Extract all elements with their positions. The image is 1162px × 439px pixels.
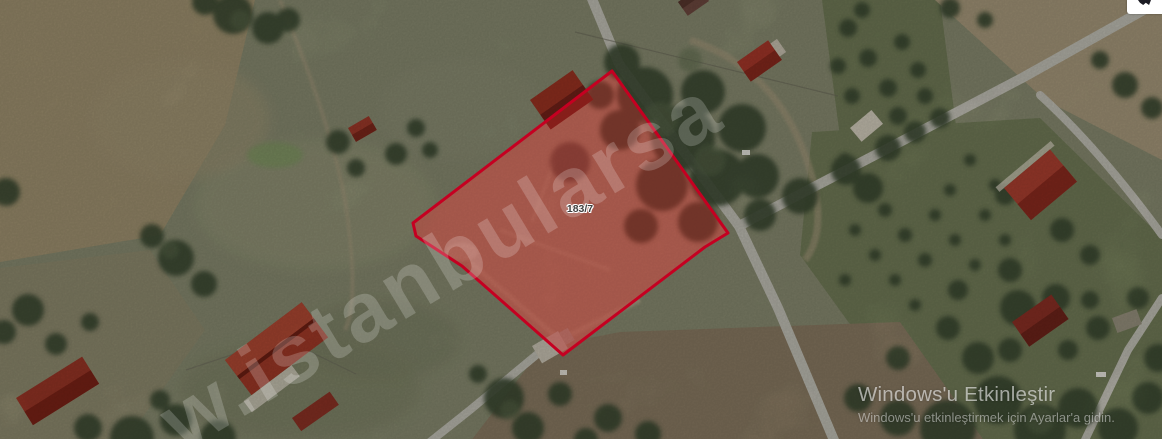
parcel-label: 183/7	[556, 203, 604, 215]
satellite-map[interactable]	[0, 0, 1162, 439]
map-viewport[interactable]: w.istanbularsa 183/7 Windows'u Etkinleşt…	[0, 0, 1162, 439]
corner-widget[interactable]	[1127, 0, 1162, 14]
partial-marker-icon	[1138, 0, 1151, 5]
